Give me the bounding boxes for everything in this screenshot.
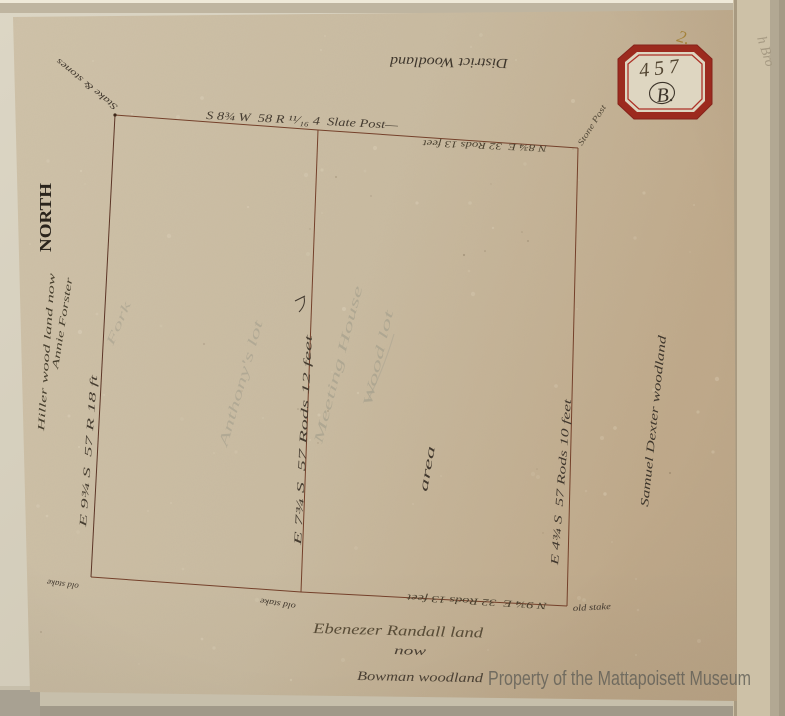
svg-text:District Woodland: District Woodland [389, 53, 510, 70]
svg-text:Property of the Mattapoisett M: Property of the Mattapoisett Museum [488, 668, 751, 690]
svg-text:old stake: old stake [573, 601, 611, 613]
svg-text:Bowman woodland: Bowman woodland [357, 668, 484, 685]
svg-text:now: now [394, 643, 426, 658]
svg-text:NORTH: NORTH [36, 183, 55, 252]
